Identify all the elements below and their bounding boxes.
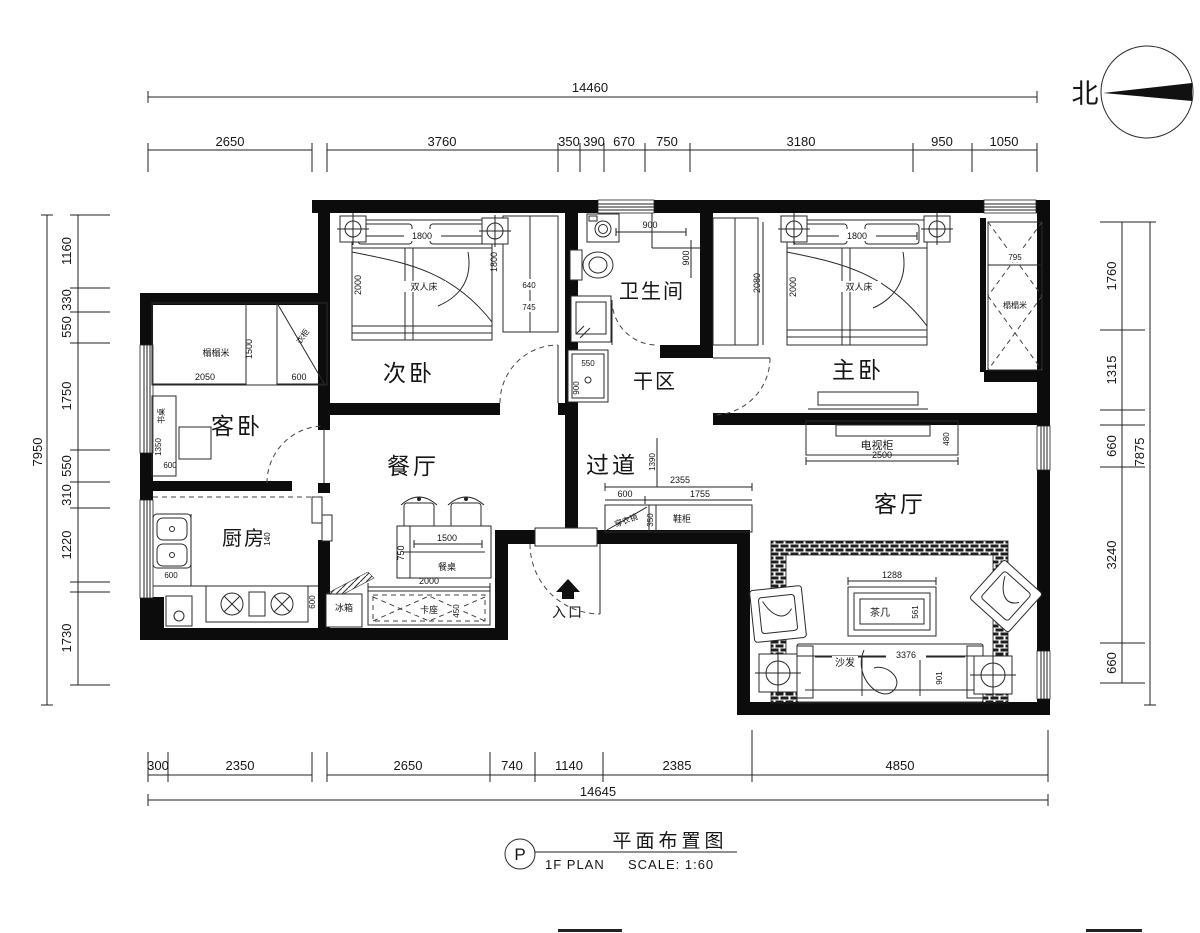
shower-area: 900 900 (616, 213, 700, 278)
window (1037, 651, 1050, 699)
dim-bottom-seg: 300 (147, 758, 169, 773)
dim-top-seg: 350 (558, 134, 580, 149)
washing-machine (587, 214, 619, 242)
label-dining-table: 餐桌 (438, 561, 456, 572)
column-symbol (778, 213, 810, 245)
dim-left-seg: 1160 (59, 237, 74, 265)
dim-table-1500: 1500 (437, 533, 457, 543)
label-double-bed: 双人床 (845, 281, 872, 292)
dim-tea-561: 561 (911, 605, 920, 619)
title-block: P 平面布置图 1F PLAN SCALE: 1:60 (505, 830, 737, 872)
bed-double: 1800 2000 双人床 (787, 220, 927, 345)
dim-total-left: 7950 (30, 438, 45, 467)
dim-bottom-seg: 740 (501, 758, 523, 773)
room-label-secondary-bedroom: 次卧 (383, 360, 435, 386)
dim-desk-1350: 1350 (154, 438, 163, 456)
dim-tatami-1500: 1500 (244, 339, 254, 359)
scan-artifacts (558, 929, 1142, 932)
label-bench: 卡座 (420, 604, 438, 615)
floor-plan-svg: 14460 2650 3760 350 390 670 750 3180 950… (0, 0, 1200, 933)
dim-right-seg: 660 (1104, 652, 1119, 674)
dim-bottom-seg: 2650 (394, 758, 423, 773)
tatami-platform: 榻榻米 1500 衣柜 2050 600 (152, 303, 327, 385)
stove (206, 586, 308, 622)
dim-shower-w: 900 (642, 220, 657, 230)
dim-total-top: 14460 (572, 80, 608, 95)
column-symbol (755, 650, 801, 696)
window (1037, 426, 1050, 470)
armchair (749, 585, 806, 642)
dim-hall-1755: 1755 (690, 489, 710, 499)
column-symbol (479, 215, 511, 247)
dim-left-seg: 1750 (59, 382, 74, 411)
entrance-arrow-icon (556, 579, 580, 599)
label-shoe-cabinet: 鞋柜 (673, 513, 691, 524)
dresser (808, 392, 928, 409)
dim-master-wardrobe: 2080 (752, 273, 762, 293)
north-needle (1103, 83, 1192, 101)
dim-bed-depth: 2000 (788, 277, 798, 297)
window (140, 345, 153, 453)
north-label: 北 (1072, 79, 1099, 109)
dim-bed-depth: 2000 (353, 275, 363, 295)
fridge: 冰箱 (326, 594, 362, 627)
room-label-master-bedroom: 主卧 (832, 357, 884, 383)
dim-hall-600: 600 (617, 489, 632, 499)
tv-cabinet: 电视柜 480 2500 (806, 421, 958, 465)
dim-bottom-seg: 1140 (555, 758, 583, 773)
dim-left-seg: 310 (59, 484, 74, 506)
toilet (570, 250, 613, 280)
dim-basin-550: 550 (581, 359, 595, 368)
door-bathroom (612, 300, 657, 345)
dim-right-seg: 660 (1104, 435, 1119, 457)
label-double-bed: 双人床 (410, 281, 437, 292)
dim-top-seg: 1050 (990, 134, 1019, 149)
room-label-dry-area: 干区 (633, 371, 677, 393)
title-symbol: P (514, 845, 525, 864)
dim-bottom-seg: 2385 (663, 758, 692, 773)
dim-wardrobe-745: 745 (522, 303, 536, 312)
dim-kitchen-140: 140 (263, 532, 272, 546)
label-desk: 书桌 (156, 408, 166, 424)
room-label-guest-bedroom: 客卧 (211, 413, 263, 439)
dim-left-seg: 550 (59, 455, 74, 477)
room-label-entrance: 入口 (552, 604, 584, 620)
room-label-hallway: 过道 (586, 452, 638, 478)
dim-sofa-901: 901 (935, 671, 944, 685)
vanity (571, 296, 611, 342)
dim-left-seg: 1220 (59, 531, 74, 560)
door-entrance (530, 528, 600, 614)
dim-bench-450: 450 (452, 604, 461, 618)
tatami-closet: 795 榻榻米 (988, 222, 1042, 370)
dim-kitchen-600: 600 (308, 595, 317, 609)
dim-sofa-3376: 3376 (896, 650, 916, 660)
dim-top-seg: 670 (613, 134, 635, 149)
master-wardrobe: 2080 (713, 218, 763, 345)
dim-right-seg: 1315 (1104, 356, 1119, 385)
dim-sink-600: 600 (164, 571, 178, 580)
dim-top-seg: 390 (583, 134, 605, 149)
dim-closet-795: 795 (1008, 253, 1022, 262)
dim-wardrobe: 1800 (489, 252, 499, 272)
dim-top-seg: 3760 (428, 134, 457, 149)
drawing-title: 平面布置图 (612, 830, 727, 852)
kitchen: 600 厨房 140 600 (153, 497, 318, 626)
room-label-dining: 餐厅 (387, 453, 439, 479)
dim-right-seg: 1760 (1104, 262, 1119, 291)
dimension-chain-top: 14460 2650 3760 350 390 670 750 3180 950… (148, 80, 1037, 172)
dim-top-seg: 750 (656, 134, 678, 149)
guest-bedroom: 榻榻米 1500 衣柜 2050 600 书桌 1350 600 客卧 (152, 303, 327, 476)
kitchen-sink: 600 (153, 514, 191, 580)
dim-shower-d: 900 (681, 250, 691, 265)
room-label-bathroom: 卫生间 (619, 280, 685, 303)
dim-hall-350: 350 (646, 513, 655, 527)
dim-total-right: 7875 (1132, 438, 1147, 467)
drawing-plan-label: 1F PLAN (545, 857, 605, 872)
room-label-kitchen: 厨房 (222, 527, 266, 550)
dining-table: 1500 750 餐桌 (396, 526, 491, 578)
label-sofa: 沙发 (835, 656, 855, 669)
label-fridge: 冰箱 (335, 602, 353, 613)
dim-table-750: 750 (396, 545, 406, 560)
sofa: 3376 沙发 901 (797, 644, 983, 702)
dim-right-seg: 3240 (1104, 541, 1119, 570)
dim-total-bottom: 14645 (580, 784, 616, 799)
dining-room: 餐厅 1500 750 餐桌 2000 卡座 450 (326, 453, 491, 627)
dimension-chain-left: 7950 1160 330 550 1750 550 310 1220 1730 (30, 215, 110, 705)
dim-hall-2355: 2355 (670, 475, 690, 485)
bathroom: 900 900 卫生间 550 900 干区 (568, 213, 700, 402)
drawing-scale-label: SCALE: 1:60 (628, 857, 714, 872)
door-master-bedroom (713, 358, 770, 415)
label-tatami: 榻榻米 (202, 347, 229, 358)
dim-tatami-2050: 2050 (195, 372, 215, 382)
column-symbol (970, 652, 1016, 698)
dim-left-seg: 1730 (59, 624, 74, 653)
hallway: 过道 1390 2355 600 1755 穿衣镜 350 鞋柜 (586, 438, 752, 532)
secondary-bedroom: 1800 2000 双人床 1800 640 745 次卧 (352, 216, 558, 386)
dim-hall-1390: 1390 (648, 453, 657, 471)
dim-dining-2000: 2000 (419, 576, 439, 586)
floor-drain (166, 596, 192, 626)
dim-bottom-seg: 4850 (886, 758, 915, 773)
dim-bed-width: 1800 (847, 231, 867, 241)
dimension-chain-bottom: 300 2350 2650 740 1140 2385 4850 14645 (147, 730, 1048, 806)
label-closet-tatami: 榻榻米 (1003, 300, 1027, 310)
dim-left-seg: 550 (59, 316, 74, 338)
dim-desk-600: 600 (163, 461, 177, 470)
window (598, 200, 654, 213)
dim-top-seg: 3180 (787, 134, 816, 149)
dim-tv-2500: 2500 (872, 450, 892, 460)
washbasin: 550 900 (568, 350, 608, 402)
north-arrow: 北 (1072, 46, 1194, 138)
dim-bottom-seg: 2350 (226, 758, 255, 773)
dim-top-seg: 950 (931, 134, 953, 149)
door-guest-bedroom (267, 426, 324, 483)
dim-tv-480: 480 (942, 432, 951, 446)
dim-wardrobe-640: 640 (522, 281, 536, 290)
door-secondary-bedroom (500, 345, 558, 403)
window (984, 200, 1036, 213)
dim-tatami-600: 600 (291, 372, 306, 382)
window (140, 500, 153, 598)
dim-left-seg: 330 (59, 289, 74, 311)
hall-cabinets: 穿衣镜 350 鞋柜 (605, 505, 752, 532)
dim-tea-1288: 1288 (882, 570, 902, 580)
door-kitchen-slider (312, 497, 332, 541)
desk: 书桌 1350 600 (152, 396, 211, 476)
floor-plan-page: 14460 2650 3760 350 390 670 750 3180 950… (0, 0, 1200, 933)
dimension-chain-right: 1760 1315 660 3240 660 7875 (1100, 222, 1156, 705)
label-tea-table: 茶几 (870, 606, 890, 619)
label-closet: 衣柜 (294, 327, 311, 346)
bed-double: 1800 2000 双人床 (352, 220, 492, 340)
column-symbol (337, 213, 369, 245)
label-mirror: 穿衣镜 (613, 511, 639, 529)
bench-seat: 卡座 450 (368, 591, 490, 625)
column-symbol (921, 213, 953, 245)
room-label-living: 客厅 (874, 491, 926, 517)
dim-top-seg: 2650 (216, 134, 245, 149)
dim-bed-width: 1800 (412, 231, 432, 241)
dim-basin-900: 900 (572, 381, 581, 395)
